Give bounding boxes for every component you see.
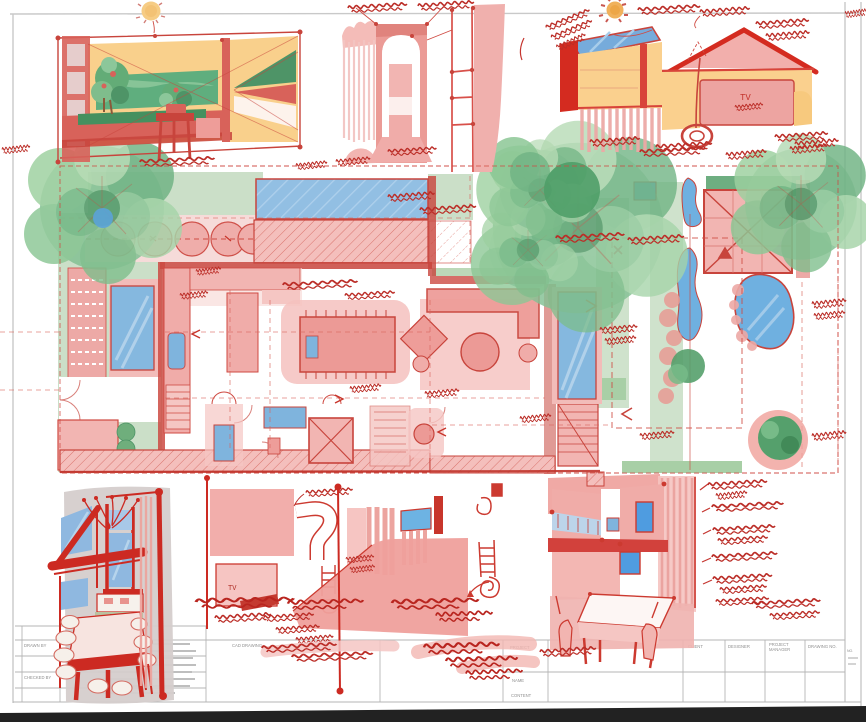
svg-text:DRAWING NO.: DRAWING NO. (808, 644, 837, 649)
svg-text:DESIGNER: DESIGNER (728, 644, 750, 649)
svg-text:MANAGER: MANAGER (769, 647, 790, 652)
svg-text:TV: TV (740, 93, 751, 103)
svg-text:TV: TV (228, 585, 237, 593)
svg-text:CAD DRAWING: CAD DRAWING (232, 643, 262, 648)
svg-text:NAME: NAME (512, 678, 524, 683)
svg-text:CHECKED BY: CHECKED BY (24, 675, 51, 680)
svg-text:CONTENT: CONTENT (511, 693, 532, 698)
svg-text:NO.: NO. (847, 649, 853, 653)
svg-text:DRAWN BY: DRAWN BY (24, 643, 47, 648)
